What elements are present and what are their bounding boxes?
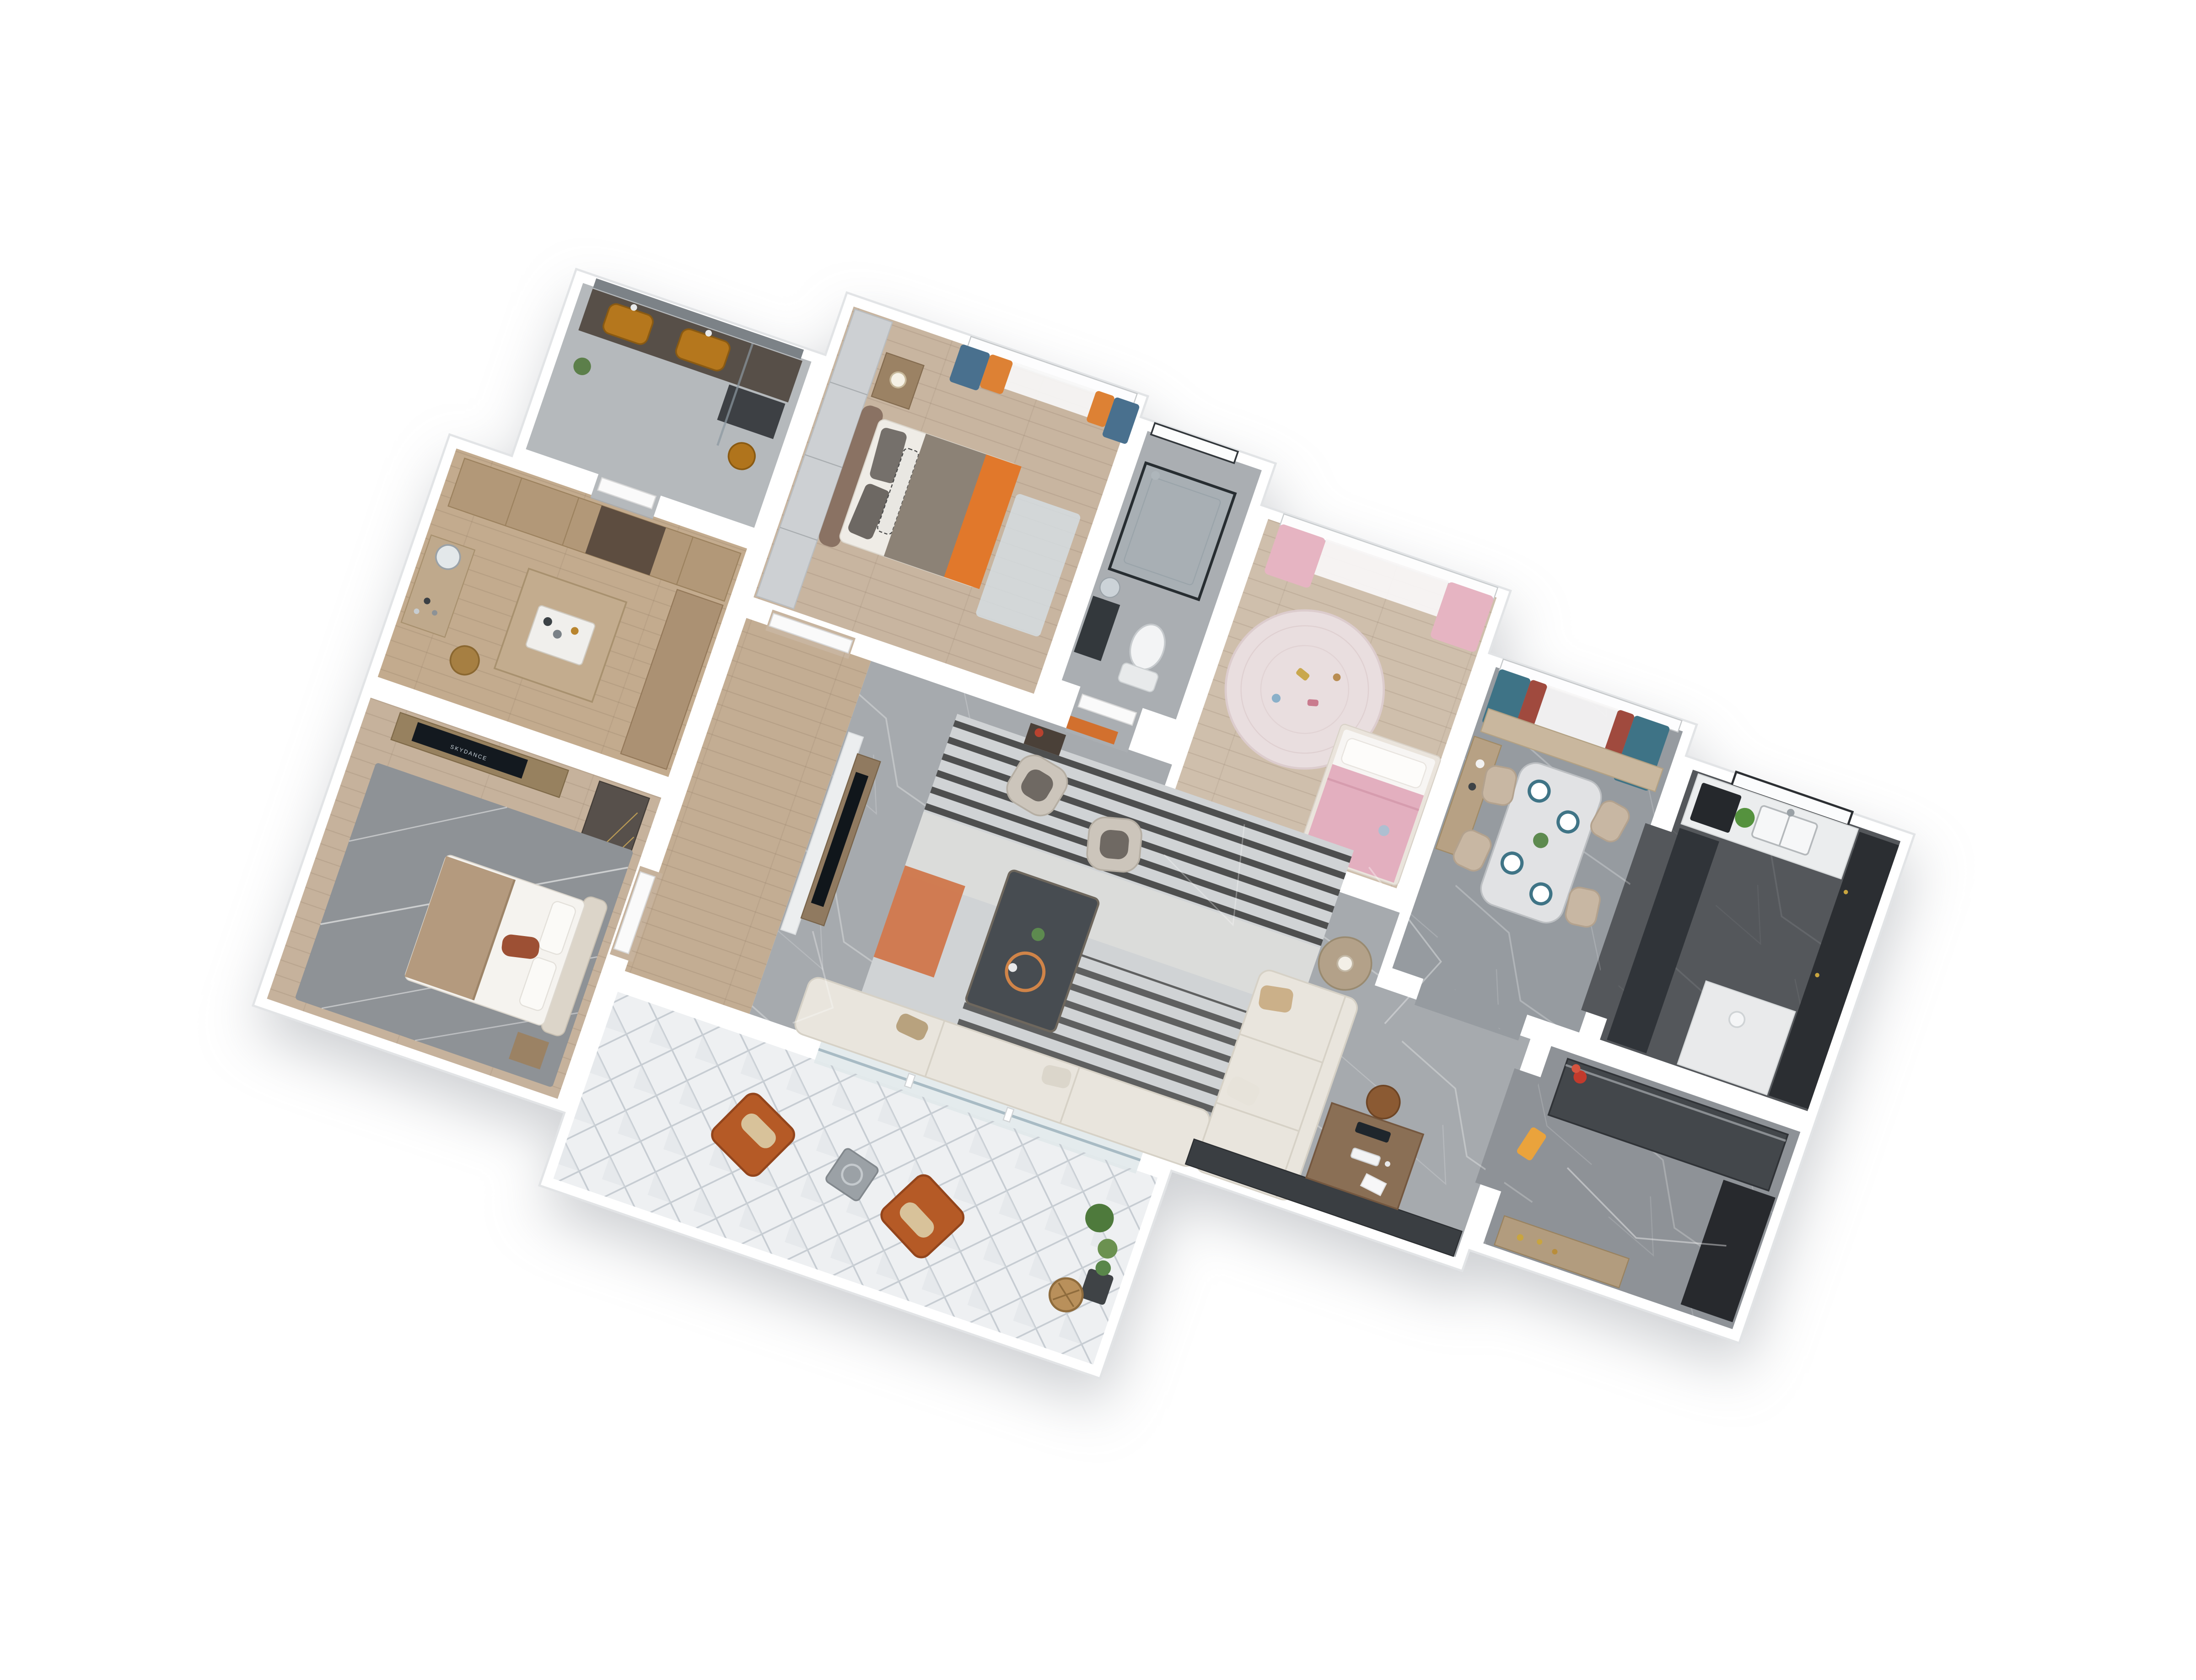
- dining-chair-1: [1480, 764, 1518, 807]
- kids-toy-2: [1307, 699, 1319, 706]
- floor-plan-group: SKYDANCE: [228, 185, 1968, 1572]
- floor-plan-svg: SKYDANCE: [0, 0, 2196, 1680]
- living-accent-chair-2-cushion: [1099, 829, 1130, 860]
- render-stage: SKYDANCE Photorealistic top-down axonome…: [0, 0, 2196, 1680]
